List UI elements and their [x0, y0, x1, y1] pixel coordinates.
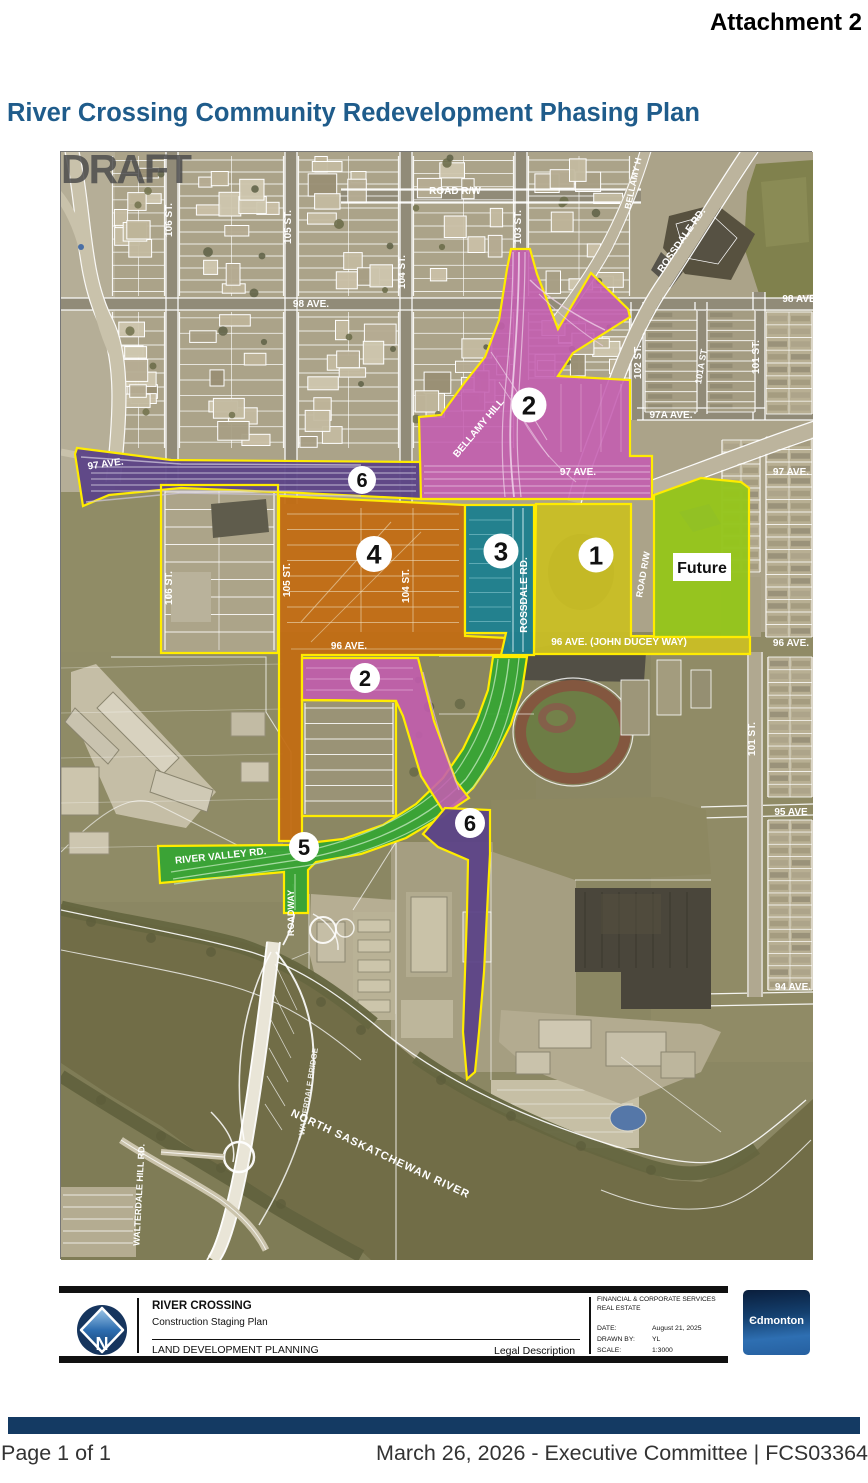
svg-text:98 AVE.: 98 AVE. [293, 299, 329, 310]
svg-text:2: 2 [522, 390, 536, 420]
svg-text:106 ST.: 106 ST. [164, 571, 175, 605]
svg-text:ROAD R/W: ROAD R/W [429, 186, 481, 197]
svg-text:96 AVE.: 96 AVE. [773, 638, 809, 649]
svg-text:6: 6 [464, 811, 476, 836]
svg-text:4: 4 [366, 540, 381, 570]
svg-text:95 AVE: 95 AVE [774, 807, 808, 818]
svg-text:101 ST.: 101 ST. [747, 722, 758, 756]
svg-text:94 AVE.: 94 AVE. [775, 982, 811, 993]
svg-text:105 ST.: 105 ST. [282, 563, 293, 597]
svg-text:96 AVE.: 96 AVE. [331, 641, 367, 652]
svg-text:98 AVE: 98 AVE [782, 294, 813, 305]
svg-text:104 ST.: 104 ST. [397, 255, 408, 289]
svg-text:Future: Future [677, 560, 727, 577]
svg-text:2: 2 [359, 666, 371, 691]
svg-text:96 AVE. (JOHN DUCEY WAY): 96 AVE. (JOHN DUCEY WAY) [551, 637, 687, 648]
svg-text:103 ST.: 103 ST. [513, 210, 524, 244]
svg-text:5: 5 [298, 835, 310, 860]
svg-text:ROADWAY: ROADWAY [286, 890, 296, 936]
svg-text:6: 6 [356, 470, 367, 492]
svg-text:104 ST.: 104 ST. [401, 569, 412, 603]
svg-text:97A AVE.: 97A AVE. [650, 410, 693, 421]
svg-text:3: 3 [494, 536, 508, 566]
svg-text:105 ST.: 105 ST. [283, 210, 294, 244]
svg-text:N: N [96, 1334, 109, 1354]
svg-text:97 AVE.: 97 AVE. [560, 467, 596, 478]
svg-text:DRAFT: DRAFT [61, 152, 192, 192]
svg-text:102 ST.: 102 ST. [633, 345, 644, 379]
svg-text:ROSSDALE RD.: ROSSDALE RD. [519, 557, 530, 633]
svg-text:1: 1 [589, 540, 603, 570]
svg-text:101 ST.: 101 ST. [751, 340, 762, 374]
svg-text:106 ST.: 106 ST. [164, 203, 175, 237]
svg-text:97 AVE.: 97 AVE. [773, 467, 809, 478]
